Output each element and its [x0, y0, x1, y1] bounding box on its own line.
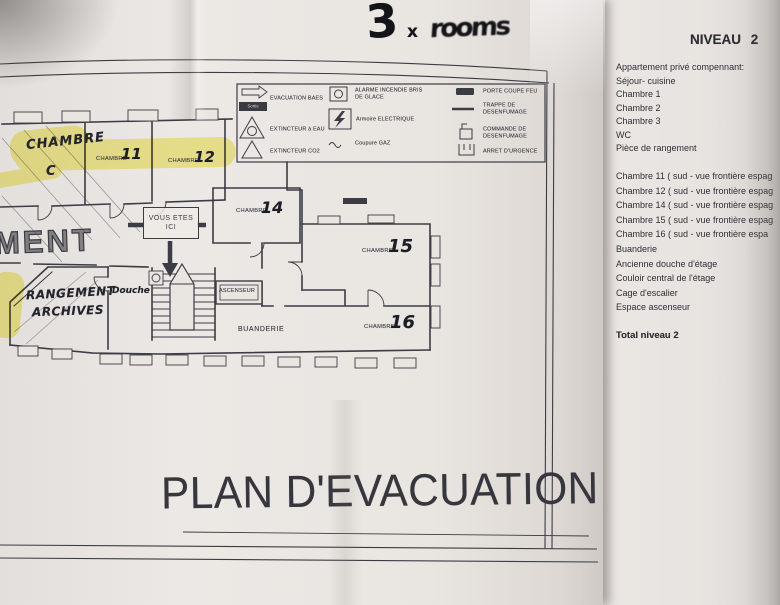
total-label: Total niveau 2: [616, 330, 679, 341]
room-number-12: 12: [194, 148, 215, 166]
legend-label-ext-co2: EXTINCTEUR CO2: [270, 148, 320, 155]
room-number-11: 11: [121, 145, 142, 163]
break-glass-alarm-icon: [330, 87, 347, 101]
ascenseur-label: ASCENSEUR: [219, 288, 255, 293]
handwritten-note-multiplier: x: [407, 22, 418, 42]
page-title: PLAN D'EVACUATION: [161, 462, 571, 519]
ment-outline-text: MENT: [0, 222, 94, 261]
extinguisher-water-icon: [240, 117, 264, 138]
smoke-control-icon: [460, 129, 472, 139]
legend-label-trappe: TRAPPE DEDESENFUMAGE: [483, 102, 527, 116]
legend-label-gaz: Coupure GAZ: [355, 140, 390, 147]
fold-highlight: [530, 0, 605, 95]
legend-label-ext-eau: EXTINCTEUR à EAU: [270, 126, 325, 133]
fire-door-icon: [456, 88, 474, 95]
extinguisher-co2-icon: [242, 141, 262, 158]
room-letter-c: C: [46, 164, 56, 179]
alarm-point: [149, 271, 163, 285]
room-number-16: 16: [390, 312, 415, 333]
emergency-stop-icon: [459, 144, 474, 155]
fold-crease: [328, 400, 362, 605]
archives-label: ARCHIVES: [32, 303, 104, 320]
legend-label-commande: COMMANDE DEDESENFUMAGE: [483, 126, 527, 140]
you-are-here-box: VOUS ETESICI: [143, 207, 199, 239]
extinguisher-water-dot: [248, 127, 257, 136]
sortie-sign: Sortie: [239, 102, 267, 111]
handwritten-note-number: 3: [364, 0, 400, 49]
photo-corner-shadow: [0, 0, 120, 90]
evacuation-arrow-icon: [242, 86, 267, 98]
handwritten-note-word: rooms: [429, 12, 510, 45]
legend-label-arret: ARRET D'URGENCE: [483, 148, 538, 155]
photo-of-evacuation-plan: 3 x rooms EVACUATION BAES Sortie EXTINCT…: [0, 0, 780, 605]
fold-crease: [744, 0, 780, 605]
legend-label-alarme: ALARME INCENDIE BRISDE GLACE: [355, 87, 422, 101]
room-number-14: 14: [261, 198, 283, 217]
fold-crease: [168, 0, 208, 120]
douche-label: Douche: [112, 286, 150, 296]
room-number-15: 15: [388, 236, 413, 257]
legend-label-armoire: Armoire ELECTRIQUE: [356, 116, 414, 123]
buanderie-label: BUANDERIE: [238, 326, 284, 333]
legend-label-evacuation: EVACUATION BAES: [270, 95, 323, 102]
gas-cut-icon: [329, 143, 341, 148]
